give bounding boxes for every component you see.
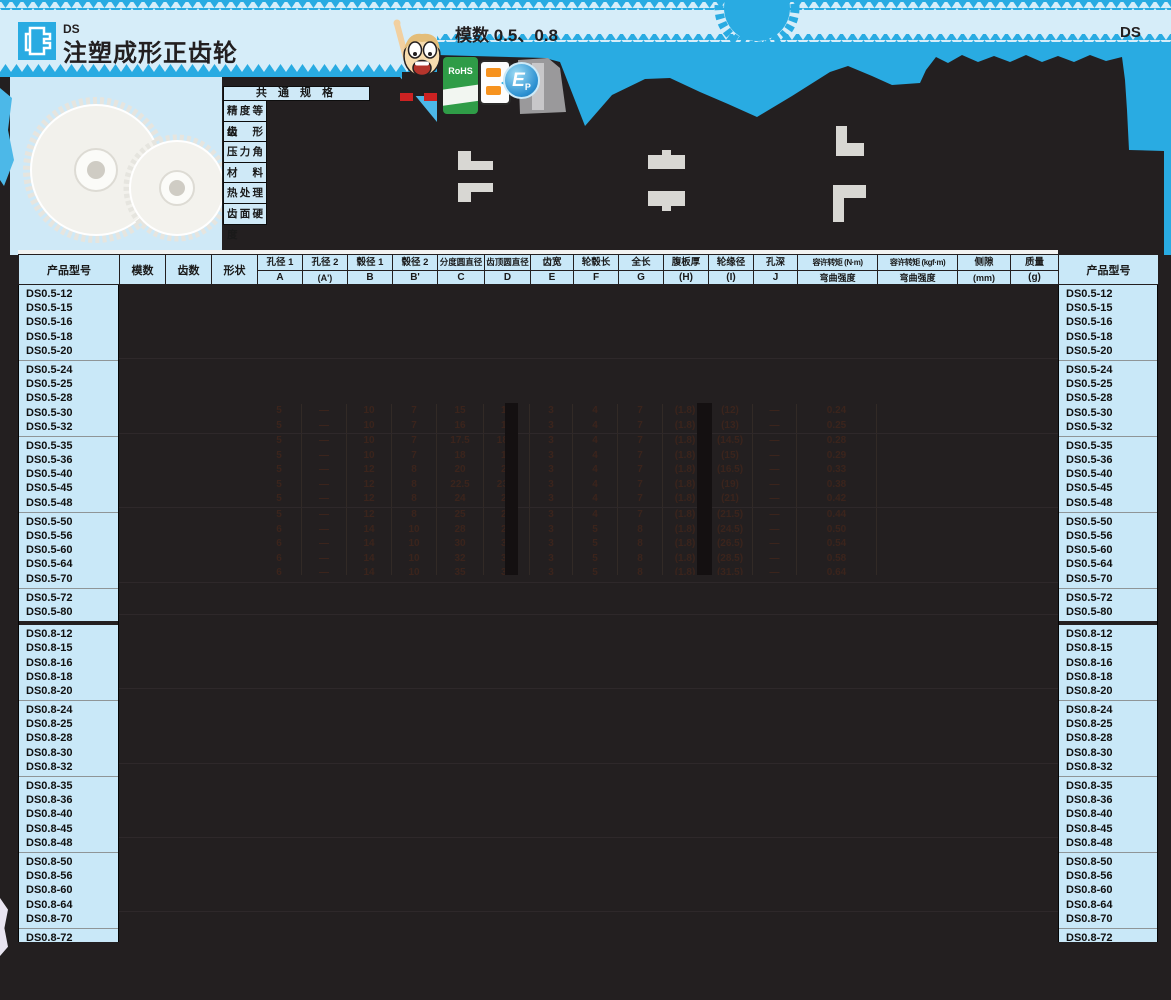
model-group: DS0.8-50DS0.8-56DS0.8-60DS0.8-64DS0.8-70 — [19, 852, 118, 928]
common-spec-label: 热处理 — [223, 183, 267, 204]
faint-value: 5 — [257, 434, 302, 449]
faint-value: 7 — [618, 508, 663, 523]
faint-value: 0.28 — [797, 434, 877, 449]
product-model: DS0.8-25 — [19, 717, 118, 731]
product-model: DS0.8-45 — [19, 822, 118, 836]
faint-value: 16 — [437, 419, 484, 434]
page-code: DS — [1120, 24, 1141, 41]
rohs-band — [443, 84, 478, 107]
model-group: DS0.8-24DS0.8-25DS0.8-28DS0.8-30DS0.8-32 — [1059, 700, 1157, 776]
column-header: 孔深J — [753, 254, 798, 285]
product-model: DS0.5-48 — [1059, 496, 1157, 510]
faint-value: (13) — [708, 419, 753, 434]
faint-value: 4 — [573, 478, 618, 493]
product-model: DS0.8-30 — [1059, 746, 1157, 760]
column-header: 轮毂长F — [573, 254, 619, 285]
product-model: DS0.5-80 — [19, 605, 118, 619]
faint-value: 4 — [573, 449, 618, 464]
product-model: DS0.5-25 — [1059, 377, 1157, 391]
faint-value: 25 — [437, 508, 484, 523]
faint-table-values: 5—1071516347(1.8)(12)—0.245—1071617347(1… — [257, 403, 877, 575]
ep-label: E — [512, 70, 525, 91]
faint-value: 5 — [573, 523, 618, 538]
product-model: DS0.8-28 — [19, 731, 118, 745]
product-model: DS0.8-12 — [19, 627, 118, 641]
column-header: 分度圆直径C — [437, 254, 485, 285]
column-header: 质量(g) — [1010, 254, 1059, 285]
product-model: DS0.5-25 — [19, 377, 118, 391]
faint-value: 5 — [257, 492, 302, 507]
product-model: DS0.8-72 — [1059, 931, 1157, 942]
product-model: DS0.8-32 — [1059, 760, 1157, 774]
product-model: DS0.5-12 — [19, 287, 118, 301]
page-title: 注塑成形正齿轮 — [63, 33, 238, 68]
product-model: DS0.5-16 — [19, 315, 118, 329]
product-model: DS0.5-28 — [1059, 391, 1157, 405]
faint-value: — — [753, 523, 797, 538]
product-model: DS0.5-64 — [19, 557, 118, 571]
product-model: DS0.5-18 — [1059, 330, 1157, 344]
faint-value: 0.64 — [797, 566, 877, 575]
product-model: DS0.5-18 — [19, 330, 118, 344]
faint-value: — — [302, 434, 347, 449]
column-header: 侧隙(mm) — [957, 254, 1011, 285]
faint-value: 3 — [530, 508, 573, 523]
faint-value: 0.24 — [797, 404, 877, 419]
column-header: 模数 — [119, 254, 166, 285]
product-model: DS0.5-80 — [1059, 605, 1157, 619]
faint-value: — — [753, 404, 797, 419]
product-model: DS0.8-15 — [19, 641, 118, 655]
column-header: 容许转矩 (N·m)弯曲强度 — [797, 254, 878, 285]
faint-value: 15 — [437, 404, 484, 419]
faint-value: 4 — [573, 508, 618, 523]
faint-value: — — [753, 478, 797, 493]
product-model: DS0.8-48 — [1059, 836, 1157, 850]
product-model: DS0.8-24 — [1059, 703, 1157, 717]
faint-value: (24.5) — [708, 523, 753, 538]
faint-value: 7 — [618, 478, 663, 493]
faint-value: — — [302, 552, 347, 567]
model-group: DS0.5-35DS0.5-36DS0.5-40DS0.5-45DS0.5-48 — [19, 436, 118, 512]
faint-value: 4 — [573, 492, 618, 507]
product-model: DS0.8-64 — [1059, 898, 1157, 912]
product-model: DS0.5-32 — [19, 420, 118, 434]
model-group: DS0.8-35DS0.8-36DS0.8-40DS0.8-45DS0.8-48 — [19, 776, 118, 852]
faint-value: — — [753, 463, 797, 478]
faint-value: 17.5 — [437, 434, 484, 449]
product-model: DS0.5-15 — [19, 301, 118, 315]
faint-value: 4 — [573, 419, 618, 434]
product-model: DS0.5-36 — [19, 453, 118, 467]
faint-value: 0.50 — [797, 523, 877, 538]
faint-value: 0.33 — [797, 463, 877, 478]
group-separator — [119, 688, 1058, 689]
model-group: DS0.5-24DS0.5-25DS0.5-28DS0.5-30DS0.5-32 — [1059, 360, 1157, 436]
faint-value: 28 — [437, 523, 484, 538]
model-group: DS0.5-50DS0.5-56DS0.5-60DS0.5-64DS0.5-70 — [19, 512, 118, 588]
faint-value: 7 — [618, 449, 663, 464]
faint-value: (15) — [708, 449, 753, 464]
common-spec-title: 共 通 规 格 — [223, 86, 370, 101]
product-model: DS0.8-70 — [1059, 912, 1157, 926]
faint-value: 7 — [618, 492, 663, 507]
faint-value: 10 — [347, 404, 392, 419]
faint-value: 5 — [257, 463, 302, 478]
product-model: DS0.5-72 — [19, 591, 118, 605]
product-model: DS0.8-48 — [19, 836, 118, 850]
product-model: DS0.5-30 — [1059, 406, 1157, 420]
product-model: DS0.5-35 — [1059, 439, 1157, 453]
faint-value: 8 — [618, 552, 663, 567]
faint-value: — — [753, 492, 797, 507]
group-separator — [119, 358, 1058, 359]
product-model: DS0.5-40 — [19, 467, 118, 481]
product-model: DS0.8-60 — [1059, 883, 1157, 897]
column-header: 齿数 — [165, 254, 212, 285]
faint-value: — — [753, 449, 797, 464]
faint-value: — — [753, 434, 797, 449]
faint-value: 14 — [347, 523, 392, 538]
product-model: DS0.8-18 — [19, 670, 118, 684]
faint-value: 30 — [437, 537, 484, 552]
table-header: 产品型号模数齿数形状孔径 1A孔径 2(A')毂径 1B毂径 2B'分度圆直径C… — [18, 254, 1158, 285]
faint-value: 3 — [530, 463, 573, 478]
faint-value: 24 — [437, 492, 484, 507]
model-group: DS0.5-72DS0.5-80 — [19, 588, 118, 621]
column-header: 轮缘径(I) — [708, 254, 754, 285]
common-spec-label: 齿形 — [223, 122, 267, 143]
faint-value: (21.5) — [708, 508, 753, 523]
product-model: DS0.5-35 — [19, 439, 118, 453]
faint-value: 22.5 — [437, 478, 484, 493]
faint-value: — — [302, 404, 347, 419]
faint-value: 10 — [392, 523, 437, 538]
column-header: 腹板厚(H) — [663, 254, 709, 285]
product-model: DS0.8-20 — [1059, 684, 1157, 698]
product-model: DS0.8-50 — [19, 855, 118, 869]
faint-value: 5 — [257, 449, 302, 464]
product-model: DS0.8-36 — [1059, 793, 1157, 807]
common-spec-rows: 精度等级齿形压力角材料热处理齿面硬度 — [223, 101, 267, 225]
faint-value: 3 — [530, 523, 573, 538]
faint-value: (16.5) — [708, 463, 753, 478]
faint-value: 6 — [257, 523, 302, 538]
product-model: DS0.5-56 — [19, 529, 118, 543]
faint-value: 7 — [618, 404, 663, 419]
product-model: DS0.8-56 — [1059, 869, 1157, 883]
product-model: DS0.8-28 — [1059, 731, 1157, 745]
product-model: DS0.5-24 — [19, 363, 118, 377]
faint-value: 10 — [347, 449, 392, 464]
product-model: DS0.5-15 — [1059, 301, 1157, 315]
faint-value: 8 — [392, 508, 437, 523]
product-model: DS0.8-20 — [19, 684, 118, 698]
product-model: DS0.5-32 — [1059, 420, 1157, 434]
product-model: DS0.5-56 — [1059, 529, 1157, 543]
common-spec-label: 精度等级 — [223, 101, 267, 122]
product-model: DS0.8-24 — [19, 703, 118, 717]
model-group: DS0.8-72DS0.8-80 — [1059, 928, 1157, 942]
faint-value: 14 — [347, 537, 392, 552]
faint-value: 4 — [573, 463, 618, 478]
product-model: DS0.5-50 — [1059, 515, 1157, 529]
faint-value: — — [753, 508, 797, 523]
faint-value: (21) — [708, 492, 753, 507]
faint-value: — — [302, 449, 347, 464]
faint-value: 12 — [347, 492, 392, 507]
faint-value: 5 — [257, 508, 302, 523]
faint-value: 32 — [437, 552, 484, 567]
product-model: DS0.5-28 — [19, 391, 118, 405]
faint-value: 4 — [573, 434, 618, 449]
model-group: DS0.8-35DS0.8-36DS0.8-40DS0.8-45DS0.8-48 — [1059, 776, 1157, 852]
column-header: 全长G — [618, 254, 664, 285]
faint-value: 14 — [347, 552, 392, 567]
group-separator — [119, 614, 1058, 615]
mascot-character — [388, 16, 450, 102]
model-group: DS0.8-24DS0.8-25DS0.8-28DS0.8-30DS0.8-32 — [19, 700, 118, 776]
faint-value: (12) — [708, 404, 753, 419]
product-model: DS0.5-70 — [19, 572, 118, 586]
faint-value: 12 — [347, 463, 392, 478]
faint-value: 10 — [347, 419, 392, 434]
faint-value: 10 — [392, 552, 437, 567]
product-model: DS0.5-12 — [1059, 287, 1157, 301]
product-model: DS0.5-45 — [19, 481, 118, 495]
faint-value: (31.5) — [708, 566, 753, 575]
product-model: DS0.8-18 — [1059, 670, 1157, 684]
faint-value: 14 — [347, 566, 392, 575]
faint-value: 3 — [530, 404, 573, 419]
group-separator — [119, 837, 1058, 838]
faint-value: 5 — [573, 537, 618, 552]
rohs-label: RoHS — [443, 66, 478, 76]
product-model: DS0.5-70 — [1059, 572, 1157, 586]
model-column-right: DS0.5-12DS0.5-15DS0.5-16DS0.5-18DS0.5-20… — [1058, 285, 1158, 942]
common-spec-label: 齿面硬度 — [223, 204, 267, 225]
ep-badge: EP — [503, 62, 540, 99]
faint-value: 0.38 — [797, 478, 877, 493]
product-model: DS0.8-36 — [19, 793, 118, 807]
faint-value: 8 — [618, 523, 663, 538]
faint-value: 7 — [392, 419, 437, 434]
faint-value: 0.42 — [797, 492, 877, 507]
faint-value: 3 — [530, 566, 573, 575]
module-note: 模数 0.5、0.8 — [455, 21, 558, 46]
product-model: DS0.5-30 — [19, 406, 118, 420]
model-group: DS0.5-24DS0.5-25DS0.5-28DS0.5-30DS0.5-32 — [19, 360, 118, 436]
faint-value: 0.29 — [797, 449, 877, 464]
product-model: DS0.8-12 — [1059, 627, 1157, 641]
faint-value: — — [302, 508, 347, 523]
product-model: DS0.8-60 — [19, 883, 118, 897]
product-model: DS0.8-35 — [1059, 779, 1157, 793]
group-separator — [119, 582, 1058, 583]
product-model: DS0.5-20 — [1059, 344, 1157, 358]
column-header: 容许转矩 (kgf·m)弯曲强度 — [877, 254, 958, 285]
product-model: DS0.8-72 — [19, 931, 118, 942]
faint-value: 8 — [392, 463, 437, 478]
column-header: 产品型号 — [1058, 254, 1159, 285]
faint-value: 3 — [530, 449, 573, 464]
faint-value: 3 — [530, 478, 573, 493]
model-group: DS0.8-50DS0.8-56DS0.8-60DS0.8-64DS0.8-70 — [1059, 852, 1157, 928]
ink-bar — [697, 403, 712, 575]
faint-value: — — [302, 463, 347, 478]
faint-value: 8 — [618, 566, 663, 575]
model-group: DS0.5-35DS0.5-36DS0.5-40DS0.5-45DS0.5-48 — [1059, 436, 1157, 512]
faint-value: 5 — [257, 404, 302, 419]
faint-value: 3 — [530, 492, 573, 507]
faint-value: 6 — [257, 552, 302, 567]
group-separator — [119, 763, 1058, 764]
product-model: DS0.8-64 — [19, 898, 118, 912]
faint-value: 8 — [392, 492, 437, 507]
faint-value: 7 — [392, 449, 437, 464]
product-model: DS0.8-45 — [1059, 822, 1157, 836]
faint-value: 3 — [530, 537, 573, 552]
product-model: DS0.5-24 — [1059, 363, 1157, 377]
faint-value: (14.5) — [708, 434, 753, 449]
faint-value: 0.25 — [797, 419, 877, 434]
faint-value: — — [302, 537, 347, 552]
faint-value: 5 — [257, 478, 302, 493]
faint-value: 3 — [530, 419, 573, 434]
faint-value: 10 — [392, 566, 437, 575]
faint-value: 10 — [392, 537, 437, 552]
faint-value: — — [753, 537, 797, 552]
faint-value: 12 — [347, 478, 392, 493]
faint-value: 6 — [257, 537, 302, 552]
faint-value: — — [302, 523, 347, 538]
product-model: DS0.5-64 — [1059, 557, 1157, 571]
common-spec-label: 压力角 — [223, 142, 267, 163]
product-model: DS0.8-35 — [19, 779, 118, 793]
section-gear-icon — [18, 22, 56, 60]
faint-value: 7 — [618, 419, 663, 434]
product-model: DS0.8-32 — [19, 760, 118, 774]
product-model: DS0.5-50 — [19, 515, 118, 529]
model-group: DS0.5-12DS0.5-15DS0.5-16DS0.5-18DS0.5-20 — [1059, 285, 1157, 360]
catalog-page: DS 注塑成形正齿轮 模数 0.5、0.8 DS RoHS EP 共 通 规 格… — [0, 0, 1171, 1000]
column-header: 孔径 2(A') — [302, 254, 348, 285]
product-model: DS0.8-30 — [19, 746, 118, 760]
faint-value: (28.5) — [708, 552, 753, 567]
model-group: DS0.8-72DS0.8-80 — [19, 928, 118, 942]
faint-value: 10 — [347, 434, 392, 449]
product-model: DS0.5-20 — [19, 344, 118, 358]
faint-value: 5 — [573, 566, 618, 575]
model-group: DS0.8-12DS0.8-15DS0.8-16DS0.8-18DS0.8-20 — [1059, 621, 1157, 700]
column-header: 孔径 1A — [257, 254, 303, 285]
faint-value: 7 — [392, 404, 437, 419]
faint-value: 8 — [392, 478, 437, 493]
faint-value: 0.44 — [797, 508, 877, 523]
product-model: DS0.5-36 — [1059, 453, 1157, 467]
faint-value: 0.58 — [797, 552, 877, 567]
faint-value: — — [753, 419, 797, 434]
product-model: DS0.5-60 — [19, 543, 118, 557]
page-curl — [0, 898, 8, 956]
model-group: DS0.5-12DS0.5-15DS0.5-16DS0.5-18DS0.5-20 — [19, 285, 118, 360]
column-header: 产品型号 — [18, 254, 120, 285]
faint-value: 6 — [257, 566, 302, 575]
product-model: DS0.5-48 — [19, 496, 118, 510]
faint-value: — — [302, 566, 347, 575]
product-model: DS0.5-60 — [1059, 543, 1157, 557]
product-model: DS0.8-16 — [1059, 656, 1157, 670]
column-header: 毂径 1B — [347, 254, 393, 285]
column-header: 齿宽E — [530, 254, 574, 285]
product-model: DS0.5-72 — [1059, 591, 1157, 605]
product-model: DS0.8-15 — [1059, 641, 1157, 655]
column-header: 齿顶圆直径D — [484, 254, 531, 285]
common-spec-label: 材料 — [223, 163, 267, 184]
faint-value: (19) — [708, 478, 753, 493]
faint-value: 4 — [573, 404, 618, 419]
rohs-badge: RoHS — [443, 57, 478, 114]
faint-value: (26.5) — [708, 537, 753, 552]
product-model: DS0.8-40 — [1059, 807, 1157, 821]
column-header: 形状 — [211, 254, 258, 285]
faint-value: 3 — [530, 552, 573, 567]
faint-value: — — [753, 566, 797, 575]
column-header: 毂径 2B' — [392, 254, 438, 285]
faint-value: 8 — [618, 537, 663, 552]
model-group: DS0.5-72DS0.5-80 — [1059, 588, 1157, 621]
ink-bar — [505, 403, 518, 575]
faint-value: 5 — [573, 552, 618, 567]
faint-value: 7 — [618, 434, 663, 449]
faint-value: — — [302, 419, 347, 434]
model-group: DS0.8-12DS0.8-15DS0.8-16DS0.8-18DS0.8-20 — [19, 621, 118, 700]
faint-value: 20 — [437, 463, 484, 478]
product-model: DS0.8-25 — [1059, 717, 1157, 731]
group-separator — [119, 911, 1058, 912]
product-model: DS0.8-16 — [19, 656, 118, 670]
faint-value: — — [753, 552, 797, 567]
product-model: DS0.5-45 — [1059, 481, 1157, 495]
faint-value: 35 — [437, 566, 484, 575]
faint-value: 12 — [347, 508, 392, 523]
faint-value: 7 — [392, 434, 437, 449]
product-model: DS0.8-50 — [1059, 855, 1157, 869]
product-model: DS0.8-40 — [19, 807, 118, 821]
product-model: DS0.8-56 — [19, 869, 118, 883]
product-model: DS0.5-16 — [1059, 315, 1157, 329]
faint-value: 18 — [437, 449, 484, 464]
faint-value: 0.54 — [797, 537, 877, 552]
model-group: DS0.5-50DS0.5-56DS0.5-60DS0.5-64DS0.5-70 — [1059, 512, 1157, 588]
faint-value: — — [302, 478, 347, 493]
model-column-left: DS0.5-12DS0.5-15DS0.5-16DS0.5-18DS0.5-20… — [18, 285, 119, 942]
product-model: DS0.5-40 — [1059, 467, 1157, 481]
faint-value: 3 — [530, 434, 573, 449]
product-model: DS0.8-70 — [19, 912, 118, 926]
faint-value: 5 — [257, 419, 302, 434]
faint-value: — — [302, 492, 347, 507]
faint-value: 7 — [618, 463, 663, 478]
